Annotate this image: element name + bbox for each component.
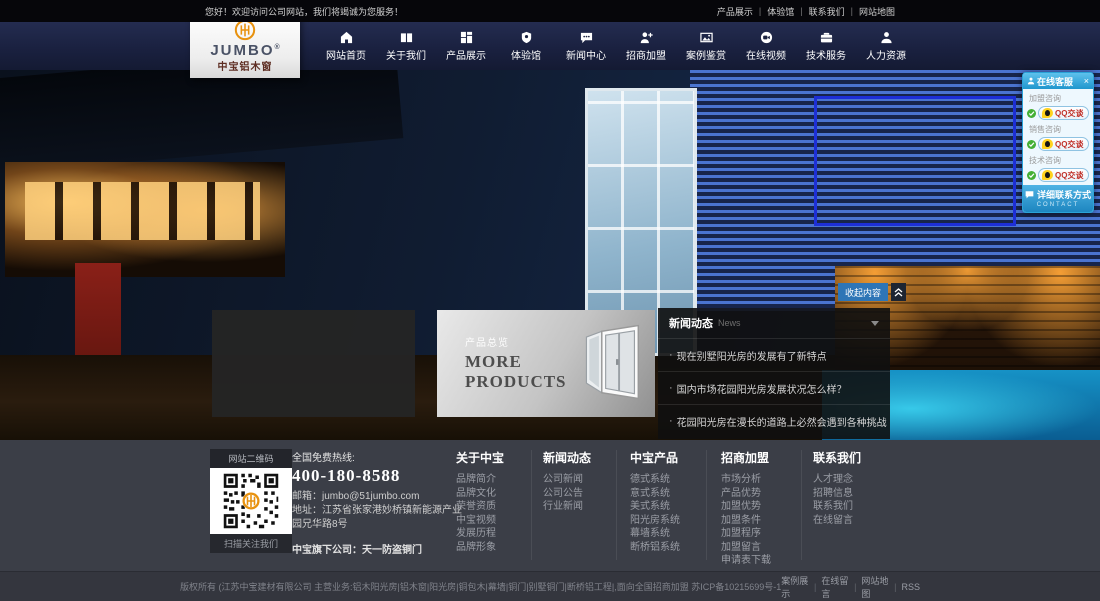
nav-item-home[interactable]: 网站首页 bbox=[316, 22, 376, 70]
top-link-sitemap[interactable]: 网站地图 bbox=[859, 5, 895, 18]
footer-column-join: 招商加盟 市场分析 产品优势 加盟优势 加盟条件 加盟程序 加盟留言 申请表下载 bbox=[721, 449, 771, 568]
bottom-link-sitemap[interactable]: 网站地图 bbox=[861, 574, 889, 600]
email-line: 邮箱：jumbo@51jumbo.com bbox=[292, 490, 468, 504]
footer-column-products: 中宝产品 德式系统 意式系统 美式系统 阳光房系统 幕墙系统 断桥铝系统 bbox=[630, 449, 680, 554]
nav-item-service[interactable]: 技术服务 bbox=[796, 22, 856, 70]
news-subtitle: News bbox=[718, 318, 741, 328]
bottom-link-message[interactable]: 在线留言 bbox=[821, 574, 849, 600]
footer-link[interactable]: 行业新闻 bbox=[543, 500, 591, 514]
qr-code-image bbox=[210, 468, 292, 534]
window-product-image bbox=[573, 320, 645, 405]
nav-item-cases[interactable]: 案例鉴赏 bbox=[676, 22, 736, 70]
news-item[interactable]: · 国内市场花园阳光房发展状况怎么样？ bbox=[658, 371, 890, 404]
news-item[interactable]: · 现在别墅阳光房的发展有了新特点 bbox=[658, 338, 890, 371]
separator: | bbox=[894, 582, 896, 592]
qr-card: 网站二维码 扫描关注我们 bbox=[210, 449, 292, 553]
separator: | bbox=[800, 6, 802, 16]
photo-icon bbox=[700, 31, 713, 44]
footer-link[interactable]: 加盟条件 bbox=[721, 514, 771, 528]
footer-divider bbox=[706, 450, 707, 560]
footer-link[interactable]: 人才理念 bbox=[813, 473, 861, 487]
bullet: · bbox=[669, 415, 673, 427]
more-products-card[interactable]: 产品总览 MORE PRODUCTS bbox=[437, 310, 655, 417]
site-logo[interactable]: JUMBO® 中宝铝木窗 bbox=[190, 14, 300, 78]
separator: | bbox=[851, 6, 853, 16]
qq-group: 加盟咨询 QQ交谈 bbox=[1023, 89, 1093, 120]
hero-roof bbox=[0, 70, 403, 176]
grid-icon bbox=[460, 31, 473, 44]
main-navigation: 网站首页 关于我们 产品展示 体验馆 新闻中心 招商加盟 bbox=[0, 22, 1100, 70]
footer-divider bbox=[801, 450, 802, 560]
top-link-products[interactable]: 产品展示 bbox=[717, 5, 753, 18]
hotline-number: 400-180-8588 bbox=[292, 466, 468, 486]
online-status-icon bbox=[1027, 140, 1036, 149]
contact-caption: CONTACT bbox=[1025, 202, 1091, 208]
selection-rectangle bbox=[814, 96, 1016, 226]
online-service-title: 在线客服 bbox=[1037, 75, 1082, 88]
footer-column-about: 关于中宝 品牌简介 品牌文化 荣誉资质 中宝视频 发展历程 品牌形象 bbox=[456, 449, 504, 554]
products-tag: 产品总览 bbox=[465, 334, 509, 349]
footer-link[interactable]: 招聘信息 bbox=[813, 487, 861, 501]
footer-link[interactable]: 阳光房系统 bbox=[630, 514, 680, 528]
footer-link[interactable]: 品牌文化 bbox=[456, 487, 504, 501]
footer-link[interactable]: 联系我们 bbox=[813, 500, 861, 514]
qq-penguin-icon bbox=[1042, 139, 1053, 149]
hero-window-band bbox=[25, 182, 260, 240]
welcome-text: 您好！欢迎访问公司网站，我们将竭诚为您服务！ bbox=[205, 5, 403, 18]
footer-link[interactable]: 市场分析 bbox=[721, 473, 771, 487]
qq-chat-button[interactable]: QQ交谈 bbox=[1038, 137, 1089, 151]
top-links: 产品展示 | 体验馆 | 联系我们 | 网站地图 bbox=[717, 5, 895, 18]
online-status-icon bbox=[1027, 171, 1036, 180]
subsidiary-line: 中宝旗下公司：天一防盗铜门 bbox=[292, 541, 468, 556]
qq-penguin-icon bbox=[1042, 108, 1053, 118]
footer-link[interactable]: 加盟优势 bbox=[721, 500, 771, 514]
footer-link[interactable]: 公司公告 bbox=[543, 487, 591, 501]
logo-subtitle: 中宝铝木窗 bbox=[218, 58, 273, 73]
footer-link[interactable]: 幕墙系统 bbox=[630, 527, 680, 541]
news-title: 新闻动态 bbox=[669, 315, 713, 331]
qr-title: 网站二维码 bbox=[210, 449, 292, 468]
qq-chat-button[interactable]: QQ交谈 bbox=[1038, 168, 1089, 182]
qq-group: 技术咨询 QQ交谈 bbox=[1023, 151, 1093, 182]
shield-icon bbox=[520, 31, 533, 44]
hotline-label: 全国免费热线: bbox=[292, 449, 468, 464]
book-icon bbox=[400, 31, 413, 44]
bullet: · bbox=[669, 349, 673, 361]
footer-divider bbox=[616, 450, 617, 560]
separator: | bbox=[759, 6, 761, 16]
more-products-title: MORE PRODUCTS bbox=[465, 352, 567, 392]
footer-link[interactable]: 美式系统 bbox=[630, 500, 680, 514]
footer-link[interactable]: 中宝视频 bbox=[456, 514, 504, 528]
news-item[interactable]: · 花园阳光房在漫长的道路上必然会遇到各种挑战 bbox=[658, 404, 890, 437]
footer-link[interactable]: 在线留言 bbox=[813, 514, 861, 528]
online-service-panel: 在线客服 × 加盟咨询 QQ交谈 销售咨询 QQ交谈 bbox=[1022, 72, 1094, 213]
bullet: · bbox=[669, 382, 673, 394]
qq-group-label: 销售咨询 bbox=[1029, 124, 1089, 135]
footer-contact: 全国免费热线: 400-180-8588 邮箱：jumbo@51jumbo.co… bbox=[292, 449, 468, 556]
qr-caption: 扫描关注我们 bbox=[210, 534, 292, 553]
chat-icon bbox=[580, 31, 593, 44]
footer-column-contact: 联系我们 人才理念 招聘信息 联系我们 在线留言 bbox=[813, 449, 861, 527]
nav-item-hr[interactable]: 人力资源 bbox=[856, 22, 916, 70]
footer-link[interactable]: 发展历程 bbox=[456, 527, 504, 541]
bottom-links: 案例展示 | 在线留言 | 网站地图 | RSS bbox=[781, 574, 920, 600]
separator: | bbox=[854, 582, 856, 592]
online-service-header: 在线客服 × bbox=[1023, 73, 1093, 89]
news-header: 新闻动态 News bbox=[658, 308, 890, 338]
footer-divider bbox=[531, 450, 532, 560]
footer-link[interactable]: 意式系统 bbox=[630, 487, 680, 501]
qq-group: 销售咨询 QQ交谈 bbox=[1023, 120, 1093, 151]
copyright-text: 版权所有 (江苏中宝建材有限公司 主营业务:铝木阳光房|铝木窗|阳光房|铜包木|… bbox=[180, 580, 781, 593]
nav-item-products[interactable]: 产品展示 bbox=[436, 22, 496, 70]
user-plus-icon bbox=[640, 31, 653, 44]
logo-name: JUMBO® bbox=[210, 41, 279, 58]
online-status-icon bbox=[1027, 109, 1036, 118]
footer-link[interactable]: 公司新闻 bbox=[543, 473, 591, 487]
collapse-chevron-button[interactable] bbox=[891, 283, 906, 301]
top-bar: 您好！欢迎访问公司网站，我们将竭诚为您服务！ 产品展示 | 体验馆 | 联系我们… bbox=[0, 0, 1100, 22]
address-line: 地址：江苏省张家港妙桥镇新能源产业园兄华路8号 bbox=[292, 504, 468, 532]
footer-link[interactable]: 荣誉资质 bbox=[456, 500, 504, 514]
footer-link[interactable]: 品牌形象 bbox=[456, 541, 504, 555]
video-icon bbox=[760, 31, 773, 44]
nav-item-video[interactable]: 在线视频 bbox=[736, 22, 796, 70]
page: 您好！欢迎访问公司网站，我们将竭诚为您服务！ 产品展示 | 体验馆 | 联系我们… bbox=[0, 0, 1100, 601]
footer-link[interactable]: 加盟程序 bbox=[721, 527, 771, 541]
chat-bubble-icon bbox=[1025, 190, 1034, 199]
product-slider-panel bbox=[212, 310, 415, 417]
nav-item-experience[interactable]: 体验馆 bbox=[496, 22, 556, 70]
qq-penguin-icon bbox=[1042, 170, 1053, 180]
home-icon bbox=[340, 31, 353, 44]
qq-group-label: 技术咨询 bbox=[1029, 155, 1089, 166]
footer-link[interactable]: 加盟留言 bbox=[721, 541, 771, 555]
top-link-contact[interactable]: 联系我们 bbox=[809, 5, 845, 18]
close-icon[interactable]: × bbox=[1084, 77, 1089, 86]
collapse-content-button[interactable]: 收起内容 bbox=[838, 283, 888, 301]
footer-link[interactable]: 申请表下载 bbox=[721, 554, 771, 568]
footer-column-news: 新闻动态 公司新闻 公司公告 行业新闻 bbox=[543, 449, 591, 514]
caret-down-icon[interactable] bbox=[871, 321, 879, 326]
briefcase-icon bbox=[820, 31, 833, 44]
bottom-link-cases[interactable]: 案例展示 bbox=[781, 574, 809, 600]
person-icon bbox=[1027, 77, 1035, 85]
footer-link[interactable]: 品牌简介 bbox=[456, 473, 504, 487]
bottom-link-rss[interactable]: RSS bbox=[902, 582, 921, 592]
footer-link[interactable]: 断桥铝系统 bbox=[630, 541, 680, 555]
qq-chat-button[interactable]: QQ交谈 bbox=[1038, 106, 1089, 120]
footer-link[interactable]: 产品优势 bbox=[721, 487, 771, 501]
bottom-bar: 版权所有 (江苏中宝建材有限公司 主营业务:铝木阳光房|铝木窗|阳光房|铜包木|… bbox=[0, 571, 1100, 601]
footer: 网站二维码 扫描关注我们 全国免费热线: 400-180-8588 邮箱：jum… bbox=[0, 440, 1100, 571]
double-chevron-up-icon bbox=[894, 287, 903, 297]
qq-group-label: 加盟咨询 bbox=[1029, 93, 1089, 104]
separator: | bbox=[814, 582, 816, 592]
news-panel: 新闻动态 News · 现在别墅阳光房的发展有了新特点 · 国内市场花园阳光房发… bbox=[658, 308, 890, 439]
top-link-experience[interactable]: 体验馆 bbox=[767, 5, 794, 18]
footer-link[interactable]: 德式系统 bbox=[630, 473, 680, 487]
email-value: jumbo@51jumbo.com bbox=[322, 491, 419, 502]
contact-detail-button[interactable]: 详细联系方式 CONTACT bbox=[1023, 185, 1093, 212]
nav-item-about[interactable]: 关于我们 bbox=[376, 22, 436, 70]
collapse-controls: 收起内容 bbox=[838, 283, 906, 301]
jumbo-emblem-icon bbox=[234, 19, 256, 41]
person-icon bbox=[880, 31, 893, 44]
nav-item-join[interactable]: 招商加盟 bbox=[616, 22, 676, 70]
nav-item-news[interactable]: 新闻中心 bbox=[556, 22, 616, 70]
